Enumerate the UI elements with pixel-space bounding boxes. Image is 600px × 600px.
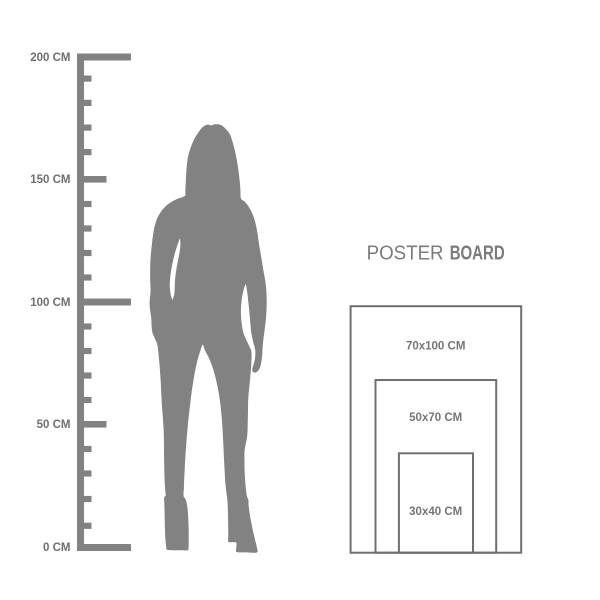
svg-text:POSTER: POSTER bbox=[367, 243, 444, 265]
svg-text:150 CM: 150 CM bbox=[30, 174, 70, 186]
svg-text:70x100 CM: 70x100 CM bbox=[406, 340, 465, 352]
svg-text:100 CM: 100 CM bbox=[30, 297, 70, 309]
svg-text:200 CM: 200 CM bbox=[30, 52, 70, 64]
svg-text:BOARD: BOARD bbox=[450, 243, 505, 265]
svg-text:50 CM: 50 CM bbox=[37, 419, 71, 431]
svg-text:0 CM: 0 CM bbox=[43, 542, 70, 554]
svg-text:50x70 CM: 50x70 CM bbox=[409, 412, 462, 424]
svg-text:30x40 CM: 30x40 CM bbox=[409, 506, 462, 518]
